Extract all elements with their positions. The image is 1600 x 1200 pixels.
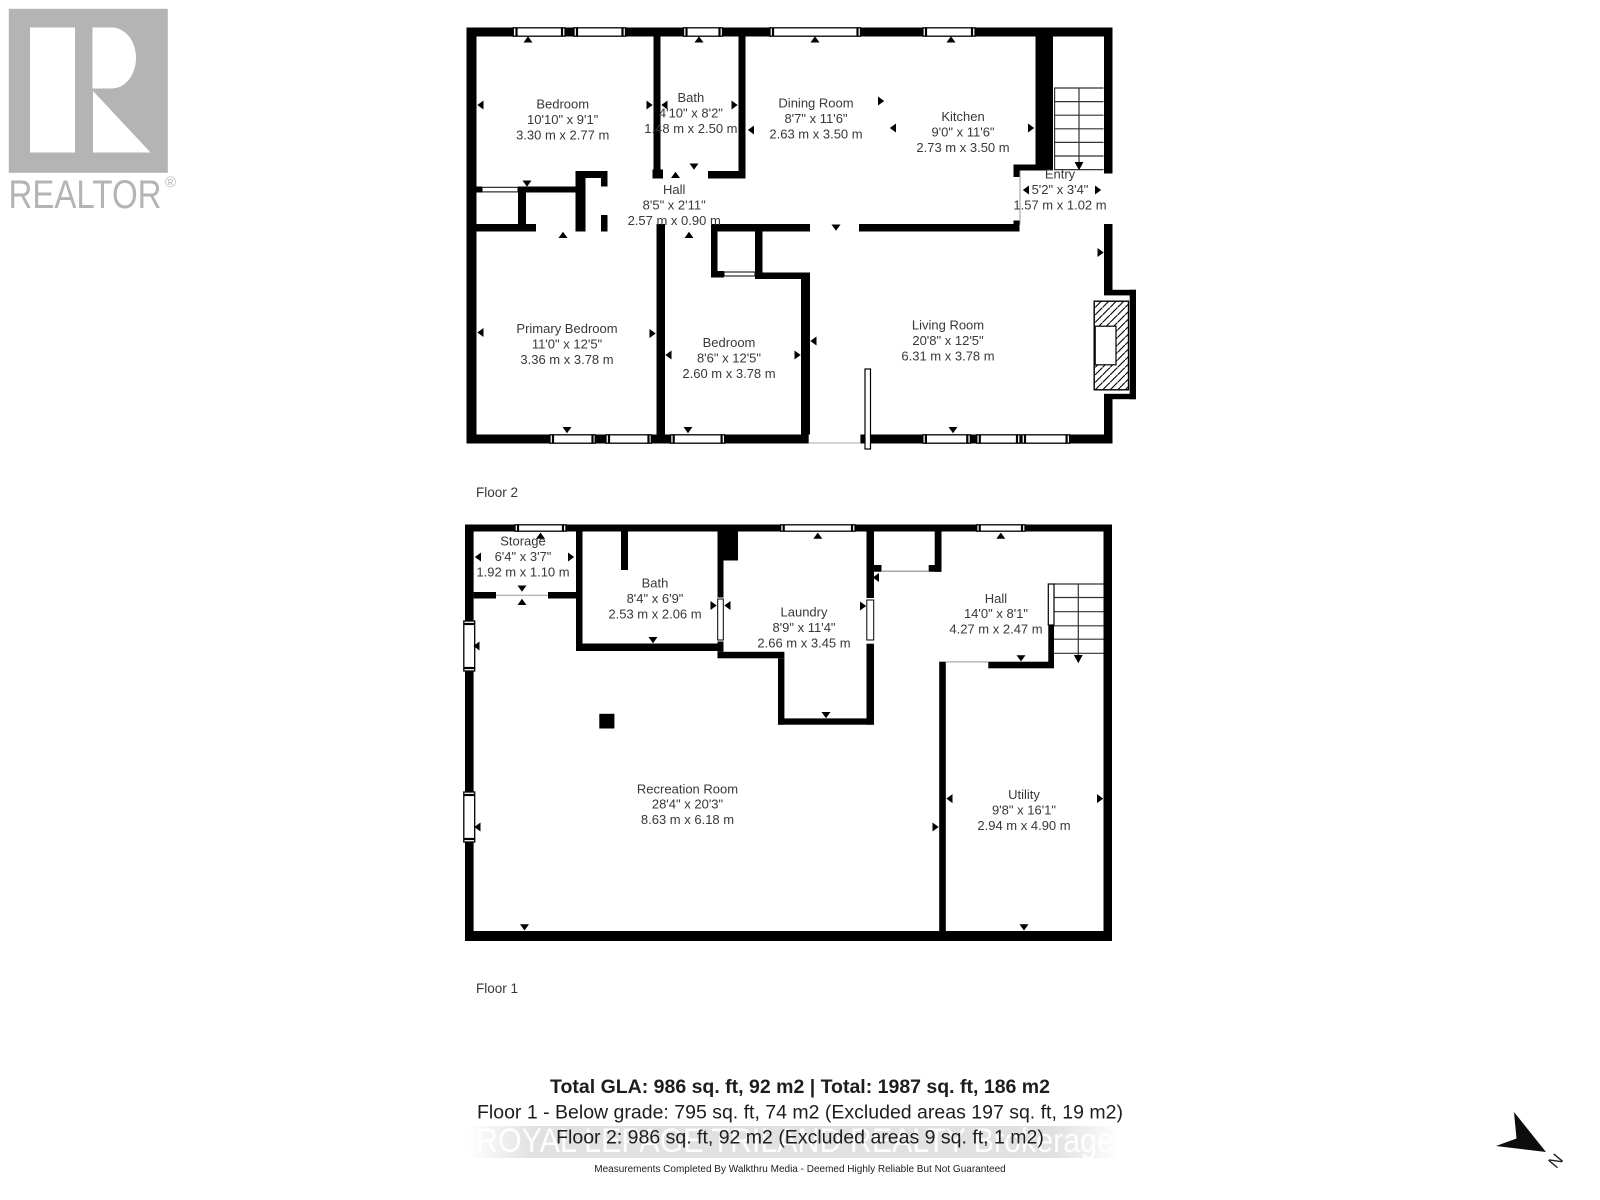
svg-text:Bath: Bath <box>678 90 705 105</box>
svg-text:8'7" x 11'6": 8'7" x 11'6" <box>784 111 847 126</box>
svg-text:8'9" x 11'4": 8'9" x 11'4" <box>772 620 835 635</box>
svg-text:Floor 1: Floor 1 <box>476 981 518 996</box>
svg-text:9'0" x 11'6": 9'0" x 11'6" <box>931 125 994 140</box>
svg-text:9'8" x 16'1": 9'8" x 16'1" <box>992 802 1056 817</box>
svg-text:Primary Bedroom: Primary Bedroom <box>516 321 617 336</box>
svg-text:Floor 1 - Below grade: 795 sq.: Floor 1 - Below grade: 795 sq. ft, 74 m2… <box>477 1102 1123 1124</box>
svg-text:8'4" x 6'9": 8'4" x 6'9" <box>627 591 684 606</box>
svg-text:Floor 2: 986 sq. ft, 92 m2 (Ex: Floor 2: 986 sq. ft, 92 m2 (Excluded are… <box>556 1127 1044 1149</box>
svg-text:14'0" x 8'1": 14'0" x 8'1" <box>964 606 1028 621</box>
svg-text:Bedroom: Bedroom <box>703 335 756 350</box>
svg-text:REALTOR: REALTOR <box>9 173 162 217</box>
svg-text:®: ® <box>165 174 176 191</box>
svg-text:11'0" x 12'5": 11'0" x 12'5" <box>532 336 603 351</box>
svg-text:3.36 m x 3.78 m: 3.36 m x 3.78 m <box>520 352 613 367</box>
svg-text:4.27 m x 2.47 m: 4.27 m x 2.47 m <box>949 622 1042 637</box>
svg-text:20'8" x 12'5": 20'8" x 12'5" <box>912 333 984 348</box>
svg-text:Hall: Hall <box>985 591 1008 606</box>
svg-text:10'10" x 9'1": 10'10" x 9'1" <box>527 112 599 127</box>
svg-text:6'4" x 3'7": 6'4" x 3'7" <box>495 549 552 564</box>
svg-text:2.57 m x 0.90 m: 2.57 m x 0.90 m <box>628 213 721 228</box>
svg-text:4'10" x 8'2": 4'10" x 8'2" <box>659 106 723 121</box>
svg-text:Utility: Utility <box>1008 787 1040 802</box>
svg-text:28'4" x 20'3": 28'4" x 20'3" <box>652 797 724 812</box>
svg-text:Kitchen: Kitchen <box>941 109 984 124</box>
svg-text:Entry: Entry <box>1045 167 1076 182</box>
svg-text:2.63 m x 3.50 m: 2.63 m x 3.50 m <box>769 126 862 141</box>
svg-text:3.30 m x 2.77 m: 3.30 m x 2.77 m <box>516 127 609 142</box>
svg-text:Total GLA: 986 sq. ft, 92 m2 |: Total GLA: 986 sq. ft, 92 m2 | Total: 19… <box>550 1076 1050 1098</box>
svg-text:2.53 m x 2.06 m: 2.53 m x 2.06 m <box>608 606 701 621</box>
svg-text:Bedroom: Bedroom <box>536 97 589 112</box>
svg-text:8'5" x 2'11": 8'5" x 2'11" <box>643 198 706 213</box>
svg-text:Floor 2: Floor 2 <box>476 485 518 500</box>
svg-text:Bath: Bath <box>642 576 669 591</box>
svg-text:Dining Room: Dining Room <box>778 96 853 111</box>
svg-text:8'6" x 12'5": 8'6" x 12'5" <box>697 350 761 365</box>
svg-text:1.57 m x 1.02 m: 1.57 m x 1.02 m <box>1013 197 1106 212</box>
svg-text:Living Room: Living Room <box>912 318 984 333</box>
svg-text:2.94 m x 4.90 m: 2.94 m x 4.90 m <box>977 818 1070 833</box>
svg-text:2.66 m x 3.45 m: 2.66 m x 3.45 m <box>757 635 850 650</box>
svg-text:8.63 m x 6.18 m: 8.63 m x 6.18 m <box>641 812 734 827</box>
svg-text:Hall: Hall <box>663 182 686 197</box>
svg-text:1.48 m x 2.50 m: 1.48 m x 2.50 m <box>644 121 737 136</box>
svg-text:1.92 m x 1.10 m: 1.92 m x 1.10 m <box>476 564 569 579</box>
svg-text:2.73 m x 3.50 m: 2.73 m x 3.50 m <box>916 140 1009 155</box>
svg-text:Recreation Room: Recreation Room <box>637 781 738 796</box>
svg-text:5'2" x 3'4": 5'2" x 3'4" <box>1032 182 1089 197</box>
svg-text:6.31 m x 3.78 m: 6.31 m x 3.78 m <box>901 348 994 363</box>
svg-text:2.60 m x 3.78 m: 2.60 m x 3.78 m <box>682 366 775 381</box>
svg-text:Laundry: Laundry <box>781 605 828 620</box>
svg-text:Measurements Completed By Walk: Measurements Completed By Walkthru Media… <box>594 1164 1005 1175</box>
